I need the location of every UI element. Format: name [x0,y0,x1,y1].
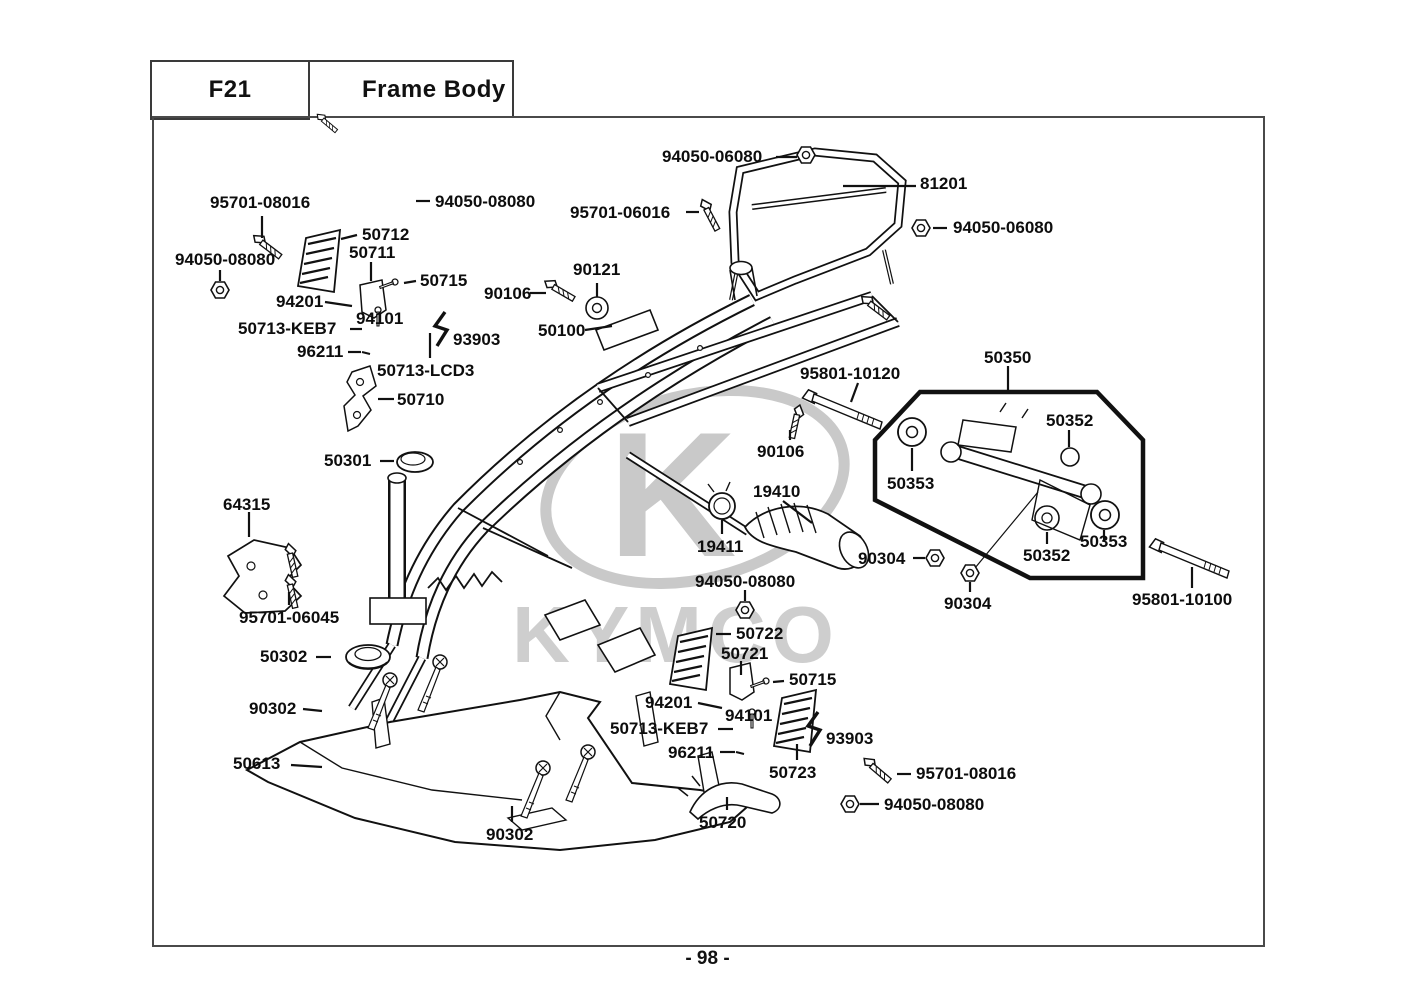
part-label: 50712 [362,226,409,244]
part-label: 50301 [324,452,371,470]
part-label: 93903 [826,730,873,748]
part-label: 90106 [484,285,531,303]
part-label: 19410 [753,483,800,501]
part-label: 64315 [223,496,270,514]
part-label: 90121 [573,261,620,279]
part-label: 50715 [420,272,467,290]
part-label: 95801-10100 [1132,591,1232,609]
part-label: 50302 [260,648,307,666]
part-label: 50352 [1046,412,1093,430]
part-label: 95801-10120 [800,365,900,383]
part-label: 95701-06016 [570,204,670,222]
part-label: 50711 [349,244,395,262]
part-label: 50713-KEB7 [238,320,336,338]
part-label: 81201 [920,175,967,193]
part-label: 94050-06080 [953,219,1053,237]
bracket-50710-icon [344,366,376,431]
part-label: 50353 [1080,533,1127,551]
part-label: 50710 [397,391,444,409]
part-label: 50722 [736,625,783,643]
part-label: 94050-08080 [695,573,795,591]
part-label: 94201 [276,293,323,311]
part-label: 50100 [538,322,585,340]
part-label: 50720 [699,814,746,832]
part-label: 93903 [453,331,500,349]
part-label: 96211 [297,343,343,361]
page-number: - 98 - [0,948,1415,970]
part-label: 94050-08080 [435,193,535,211]
part-label: 50723 [769,764,816,782]
part-label: 90304 [944,595,991,613]
part-label: 50353 [887,475,934,493]
part-label: 50713-KEB7 [610,720,708,738]
part-label: 94050-08080 [884,796,984,814]
catalog-page: F21 Frame Body [0,0,1415,1000]
part-label: 94050-08080 [175,251,275,269]
part-label: 50350 [984,349,1031,367]
part-label: 94050-06080 [662,148,762,166]
part-label: 50613 [233,755,280,773]
part-label: 96211 [668,744,714,762]
grommet-50302-icon [346,645,390,669]
part-label: 94201 [645,694,692,712]
part-label: 90304 [858,550,905,568]
part-label: 90106 [757,443,804,461]
part-label: 94101 [356,310,403,328]
rear-carrier-art [731,152,902,300]
part-label: 94101 [725,707,772,725]
part-label: 50715 [789,671,836,689]
part-label: 50713-LCD3 [377,362,474,380]
part-label: 90302 [249,700,296,718]
part-label: 50721 [721,645,768,663]
part-label: 95701-08016 [210,194,310,212]
part-label: 95701-08016 [916,765,1016,783]
part-label: 50352 [1023,547,1070,565]
part-label: 90302 [486,826,533,844]
part-label: 19411 [697,538,743,556]
bracket-64315-art [224,540,308,613]
part-label: 95701-06045 [239,609,339,627]
